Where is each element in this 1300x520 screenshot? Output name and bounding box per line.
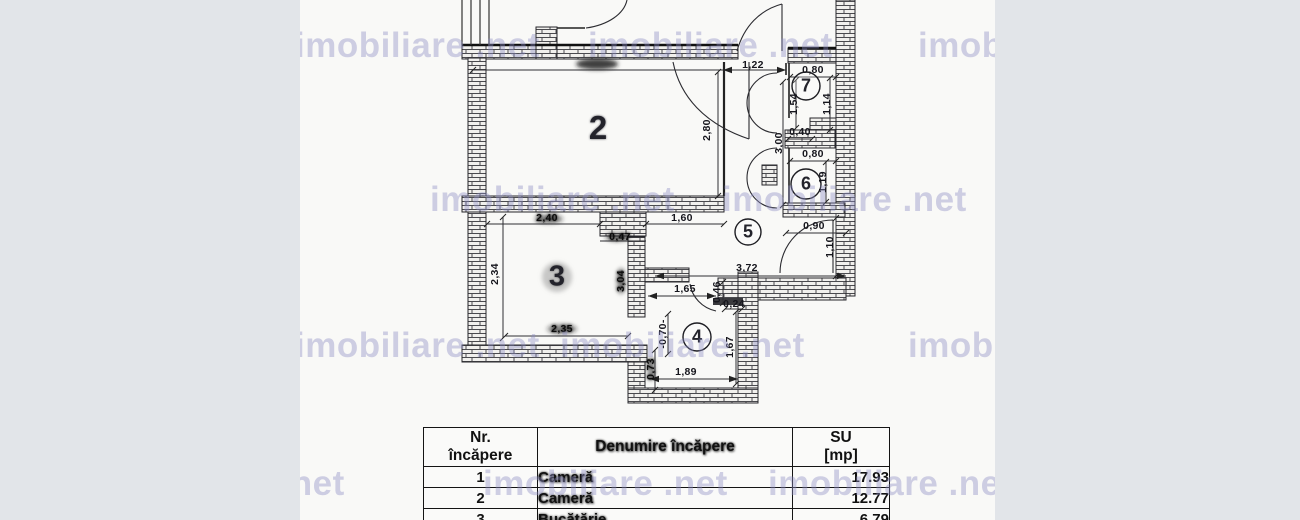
dim-label: 0,80 xyxy=(802,148,824,160)
scan-margin-right xyxy=(995,0,1300,520)
dim-label: 0,24 xyxy=(723,298,745,310)
dim-label: 0,46 xyxy=(711,281,723,303)
cell-su: 6.79 xyxy=(793,509,890,520)
watermark-text: imobiliare .net xyxy=(295,26,540,66)
dim-label: 0,40 xyxy=(789,126,811,138)
dim-label: 2,80 xyxy=(701,119,713,141)
cell-nr: 3 xyxy=(424,509,538,520)
col-header-su: SU [mp] xyxy=(793,428,890,467)
cell-name: Bucătărie xyxy=(538,509,793,520)
table-header-row: Nr. încăpere Denumire încăpere SU [mp] xyxy=(424,428,890,467)
watermark-text: imobiliare .net xyxy=(483,464,728,504)
table-row: 3 Bucătărie 6.79 xyxy=(424,509,890,520)
dim-label: 2,34 xyxy=(489,263,501,285)
col-header-name: Denumire încăpere xyxy=(538,428,793,467)
dim-label: 3,00 xyxy=(773,132,785,154)
room-label-2: 2 xyxy=(589,109,607,147)
dim-label: 1,14 xyxy=(821,93,833,115)
watermark-text: imobiliare .net xyxy=(430,180,675,220)
dim-label: 1,89 xyxy=(675,366,697,378)
watermark-text: imobiliare .net xyxy=(768,464,1013,504)
dim-label: 0,47 xyxy=(609,231,631,243)
watermark-text: imobiliare .net xyxy=(722,180,967,220)
watermark-text: imobiliare .net xyxy=(295,326,540,366)
scanned-floorplan-page: 2 3 4 5 6 7 1,22 0,80 1,54 1,14 0,40 3,0… xyxy=(0,0,1300,520)
watermark-text: imobiliare .net xyxy=(588,26,833,66)
scan-margin-left xyxy=(0,0,300,520)
col-header-nr: Nr. încăpere xyxy=(424,428,538,467)
room-label-3: 3 xyxy=(549,261,565,294)
room-label-5: 5 xyxy=(743,222,753,243)
dim-label: 1,54 xyxy=(788,93,800,115)
room-label-7: 7 xyxy=(801,76,811,97)
dim-label: 0,90 xyxy=(803,220,825,232)
dim-label: 1,10 xyxy=(824,236,836,258)
dim-label: 1,65 xyxy=(674,283,696,295)
dim-label: 3,72 xyxy=(736,262,758,274)
dim-label: 3,04 xyxy=(615,270,627,292)
watermark-text: imobiliare .net xyxy=(560,326,805,366)
